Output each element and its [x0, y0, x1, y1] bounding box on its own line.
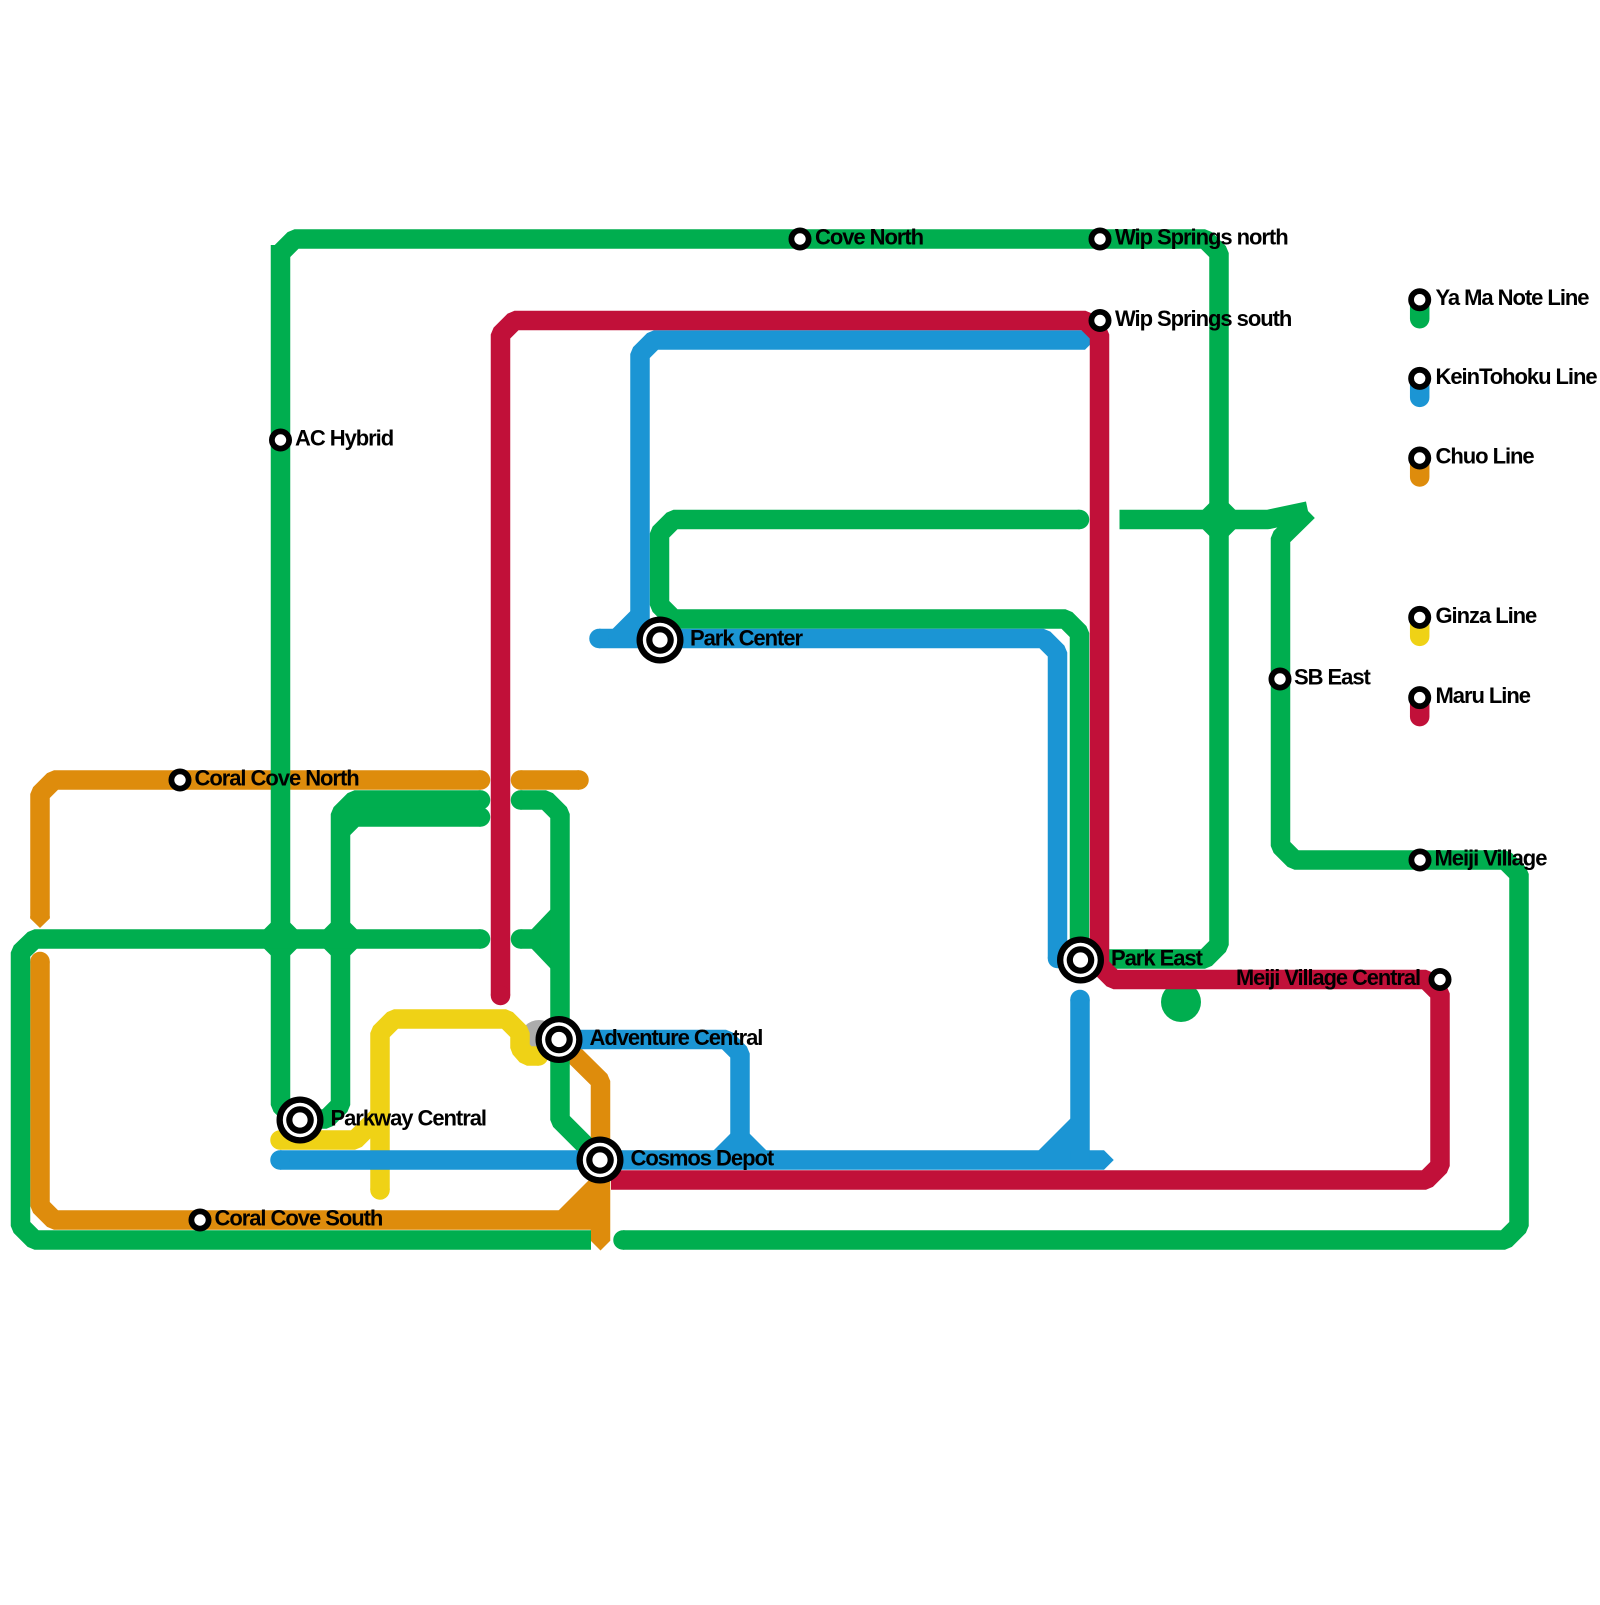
svg-text:Ya Ma Note Line: Ya Ma Note Line	[1436, 285, 1590, 310]
svg-text:KeinTohoku Line: KeinTohoku Line	[1436, 364, 1598, 389]
svg-text:Chuo Line: Chuo Line	[1436, 444, 1535, 469]
svg-text:Parkway Central: Parkway Central	[331, 1106, 486, 1131]
svg-text:SB East: SB East	[1294, 665, 1372, 690]
svg-text:Park Center: Park Center	[690, 626, 803, 651]
svg-text:Meiji Village Central: Meiji Village Central	[1236, 965, 1420, 990]
svg-text:AC Hybrid: AC Hybrid	[295, 426, 393, 451]
svg-text:Cove North: Cove North	[815, 225, 924, 250]
svg-text:Ginza Line: Ginza Line	[1436, 603, 1538, 628]
svg-text:Park East: Park East	[1111, 946, 1204, 971]
svg-text:Wip Springs north: Wip Springs north	[1115, 225, 1288, 250]
svg-text:Coral Cove North: Coral Cove North	[195, 766, 360, 791]
svg-text:Adventure Central: Adventure Central	[590, 1025, 763, 1050]
svg-text:Coral Cove South: Coral Cove South	[215, 1206, 383, 1231]
svg-text:Meiji Village: Meiji Village	[1435, 846, 1548, 871]
svg-text:Maru Line: Maru Line	[1436, 683, 1531, 708]
svg-text:Wip Springs south: Wip Springs south	[1115, 306, 1292, 331]
svg-text:Cosmos Depot: Cosmos Depot	[631, 1146, 775, 1171]
